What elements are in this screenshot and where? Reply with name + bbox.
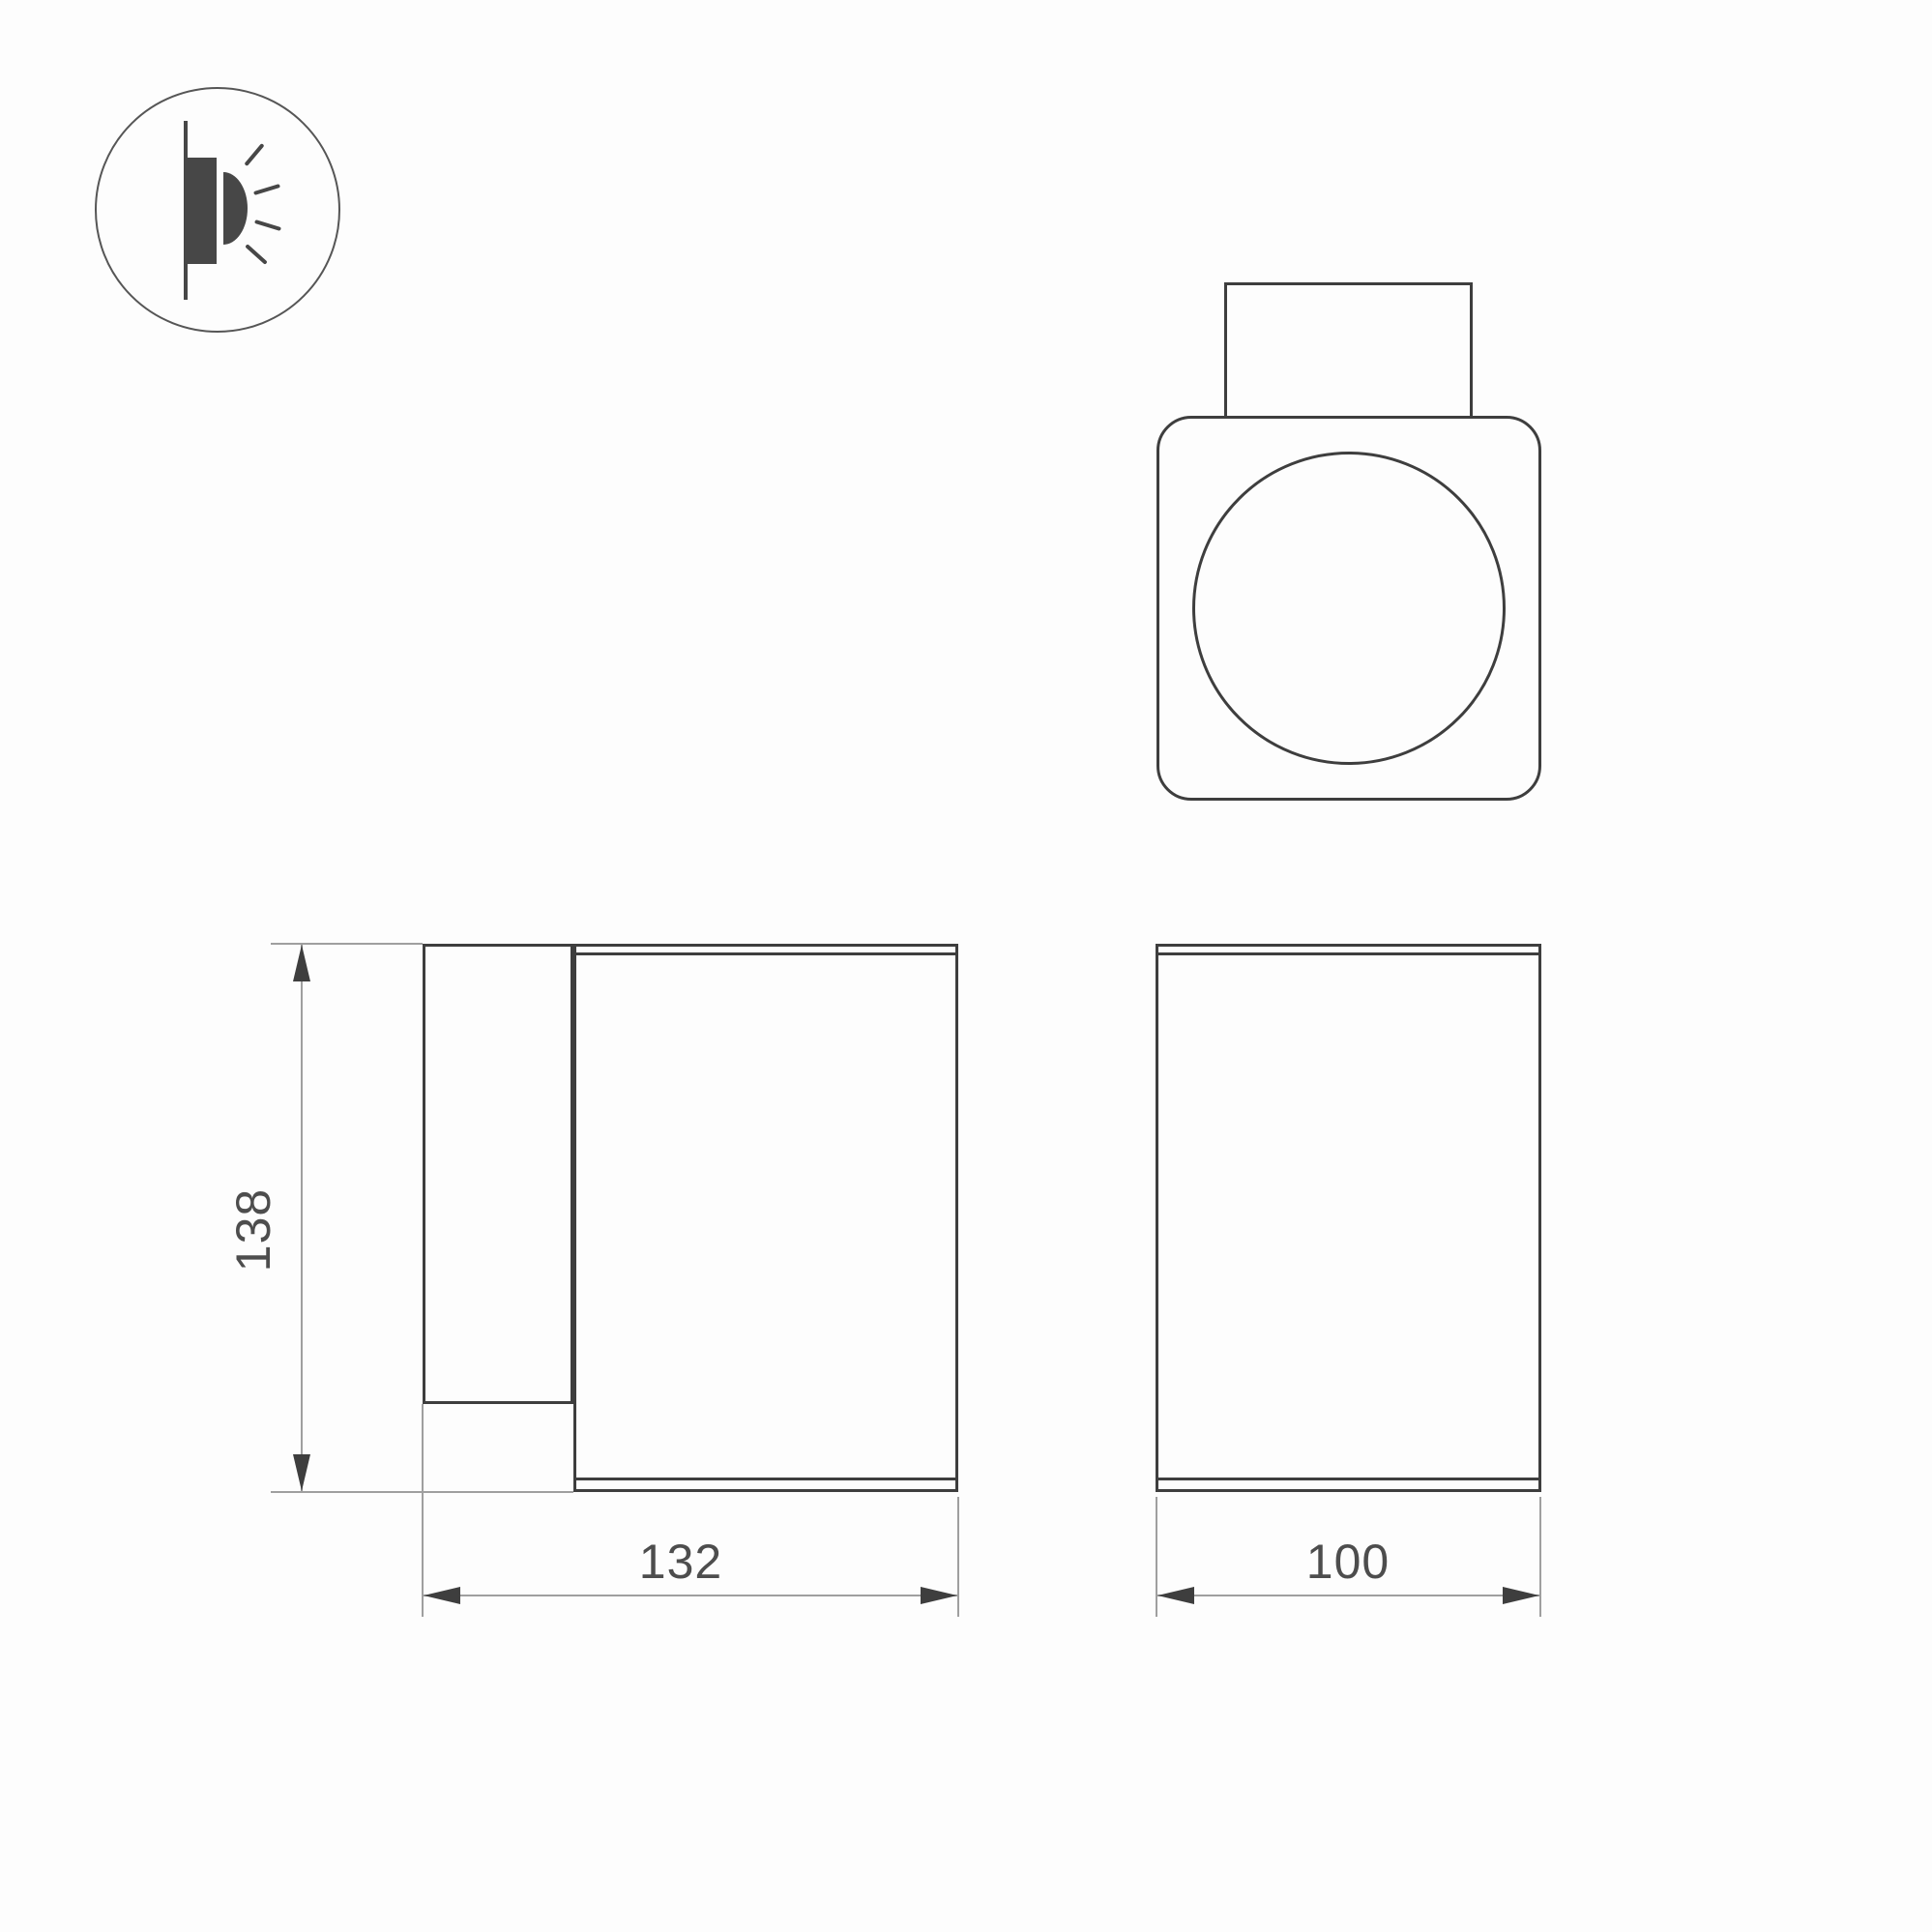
- dimension-front-width-label: 100: [1251, 1537, 1445, 1586]
- extension-line: [1539, 1497, 1541, 1617]
- dimension-side-width-label: 132: [584, 1537, 777, 1586]
- fixture-body-silhouette: [188, 158, 217, 264]
- mounting-bracket-outline: [1224, 282, 1473, 419]
- arrowhead-left: [1157, 1587, 1194, 1604]
- arrowhead-right: [921, 1587, 957, 1604]
- dimension-line: [1157, 1595, 1539, 1596]
- body-top-trim-line: [575, 952, 956, 955]
- arrowhead-left: [424, 1587, 460, 1604]
- arrowhead-down: [293, 1454, 310, 1491]
- luminaire-dimension-drawing: 138 132 100: [0, 0, 1932, 1932]
- dimension-line: [301, 945, 303, 1491]
- body-outline: [573, 944, 958, 1492]
- arrowhead-right: [1503, 1587, 1539, 1604]
- body-outline: [1156, 944, 1541, 1492]
- dimension-height-label: 138: [229, 1133, 278, 1327]
- icon-border-circle: [95, 87, 340, 333]
- body-bottom-trim-line: [575, 1478, 956, 1480]
- extension-line: [957, 1497, 959, 1617]
- wall-bracket-outline: [423, 944, 573, 1404]
- body-bottom-trim-line: [1157, 1478, 1539, 1480]
- extension-line: [422, 1404, 424, 1617]
- lens-circle-outline: [1192, 452, 1506, 765]
- arrowhead-up: [293, 945, 310, 981]
- body-top-trim-line: [1157, 952, 1539, 955]
- wall-mount-light-icon: [0, 0, 387, 387]
- dimension-line: [424, 1595, 957, 1596]
